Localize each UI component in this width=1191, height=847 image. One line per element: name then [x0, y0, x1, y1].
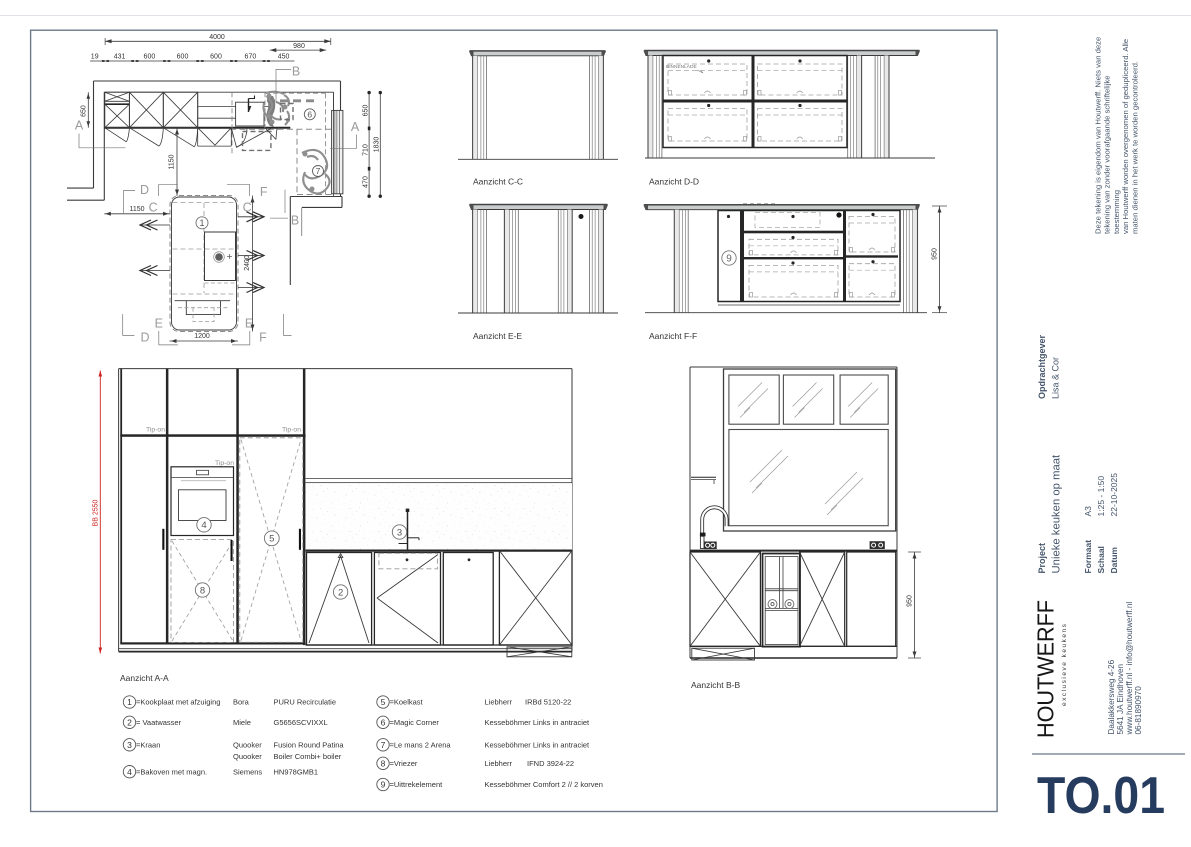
svg-text:2: 2 [338, 587, 343, 598]
svg-text:710: 710 [362, 144, 369, 156]
svg-text:7: 7 [316, 166, 321, 176]
svg-text:5: 5 [381, 697, 386, 707]
svg-text:=Bakoven met magn.: =Bakoven met magn. [136, 767, 207, 776]
svg-text:exclusieve keukens: exclusieve keukens [1061, 623, 1068, 706]
svg-text:650: 650 [81, 105, 88, 117]
svg-text:= Vaatwasser: = Vaatwasser [136, 718, 182, 727]
svg-text:A3: A3 [1083, 506, 1093, 517]
svg-text:C: C [149, 201, 158, 215]
svg-text:980: 980 [293, 43, 305, 50]
svg-text:Aanzicht D-D: Aanzicht D-D [649, 177, 699, 187]
svg-text:F: F [260, 185, 268, 199]
svg-text:Aanzicht B-B: Aanzicht B-B [691, 680, 740, 690]
svg-text:Aanzicht C-C: Aanzicht C-C [473, 177, 523, 187]
svg-text:1:25 - 1:50: 1:25 - 1:50 [1096, 476, 1106, 517]
svg-text:Quooker: Quooker [233, 741, 262, 750]
svg-text:Datum: Datum [1109, 547, 1119, 574]
svg-text:IFND 3924-22: IFND 3924-22 [527, 759, 574, 768]
svg-text:Tip-on: Tip-on [146, 427, 165, 434]
svg-text:1: 1 [199, 218, 204, 228]
svg-text:22-10-2025: 22-10-2025 [1109, 473, 1119, 517]
svg-text:1: 1 [127, 697, 132, 707]
svg-text:2: 2 [127, 717, 132, 727]
svg-text:431: 431 [114, 54, 126, 61]
svg-text:650: 650 [362, 105, 369, 117]
svg-text:6: 6 [307, 109, 312, 119]
svg-text:670: 670 [245, 54, 257, 61]
svg-text:Aanzicht A-A: Aanzicht A-A [120, 673, 169, 683]
svg-text:Quooker: Quooker [233, 752, 262, 761]
svg-text:Aanzicht F-F: Aanzicht F-F [649, 331, 697, 341]
svg-text:E: E [155, 317, 163, 331]
svg-text:3: 3 [127, 740, 132, 750]
svg-text:8: 8 [200, 585, 205, 596]
svg-text:1150: 1150 [169, 154, 176, 169]
svg-text:Tip-on: Tip-on [215, 460, 234, 467]
svg-text:PURU Recirculatie: PURU Recirculatie [274, 698, 337, 707]
svg-text:toestemming: toestemming [1112, 190, 1121, 234]
svg-text:Opdrachtgever: Opdrachtgever [1037, 334, 1047, 399]
svg-text:=Koelkast: =Koelkast [390, 698, 424, 707]
svg-text:450: 450 [278, 54, 290, 61]
svg-text:Liebherr: Liebherr [485, 759, 513, 768]
svg-text:Fusion Round Patina: Fusion Round Patina [274, 741, 345, 750]
svg-text:B: B [291, 214, 299, 228]
svg-text:600: 600 [210, 54, 222, 61]
svg-text:maten dienen in het werk te wo: maten dienen in het werk te worden gecon… [1130, 61, 1139, 234]
svg-text:=Kookplaat met afzuiging: =Kookplaat met afzuiging [136, 698, 220, 707]
svg-text:=Vriezer: =Vriezer [390, 759, 418, 768]
svg-text:06-81890970: 06-81890970 [1134, 686, 1143, 735]
svg-text:B: B [292, 65, 300, 79]
svg-text:4: 4 [127, 767, 132, 777]
svg-text:5: 5 [269, 534, 274, 545]
svg-text:9: 9 [381, 780, 386, 790]
svg-text:Deze tekening is eigendom van: Deze tekening is eigendom van Houtwerff.… [1094, 37, 1103, 234]
svg-text:950: 950 [907, 595, 914, 607]
svg-text:4: 4 [201, 520, 206, 531]
svg-text:D: D [140, 183, 149, 197]
svg-text:TO.01: TO.01 [1037, 767, 1165, 825]
svg-text:9: 9 [726, 254, 732, 265]
svg-text:=Le mans 2 Arena: =Le mans 2 Arena [390, 741, 452, 750]
svg-text:2400: 2400 [244, 255, 251, 271]
svg-text:HOUTWERFF: HOUTWERFF [1033, 600, 1059, 738]
svg-text:1150: 1150 [129, 206, 144, 213]
svg-text:Bora: Bora [233, 698, 250, 707]
svg-text:600: 600 [144, 54, 156, 61]
svg-text:Schaal: Schaal [1096, 546, 1106, 573]
svg-text:BB 2550: BB 2550 [93, 499, 100, 526]
svg-text:Project: Project [1037, 543, 1047, 574]
svg-text:Aanzicht E-E: Aanzicht E-E [473, 331, 522, 341]
svg-text:600: 600 [177, 54, 189, 61]
svg-text:5641 JA Eindhoven: 5641 JA Eindhoven [1116, 663, 1125, 734]
svg-text:HN978GMB1: HN978GMB1 [274, 767, 319, 776]
svg-text:F: F [259, 331, 267, 345]
svg-text:www.houtwerff.nl - info@houtwe: www.houtwerff.nl - info@houtwerff.nl [1125, 602, 1134, 736]
svg-text:BINNENLADE: BINNENLADE [666, 64, 697, 70]
svg-text:19: 19 [91, 54, 99, 61]
svg-text:Formaat: Formaat [1083, 540, 1093, 574]
svg-text:Kesseböhmer Links in antraciet: Kesseböhmer Links in antraciet [485, 718, 591, 727]
svg-text:A: A [351, 120, 360, 134]
svg-text:=Uittrekelement: =Uittrekelement [390, 780, 444, 789]
svg-text:8: 8 [381, 758, 386, 768]
svg-text:Tip-on: Tip-on [282, 427, 301, 434]
svg-text:Miele: Miele [233, 718, 251, 727]
svg-text:A: A [75, 119, 84, 133]
svg-text:=Kraan: =Kraan [136, 741, 160, 750]
svg-text:Siemens: Siemens [233, 767, 262, 776]
svg-text:=Magic Corner: =Magic Corner [390, 718, 440, 727]
svg-text:Unieke keuken op maat: Unieke keuken op maat [1051, 454, 1063, 574]
svg-text:Kesseböhmer Comfort 2 // 2 kor: Kesseböhmer Comfort 2 // 2 korven [485, 780, 603, 789]
svg-text:6: 6 [381, 717, 386, 727]
svg-text:7: 7 [381, 740, 386, 750]
svg-text:IRBd 5120-22: IRBd 5120-22 [525, 698, 571, 707]
svg-text:Daalakkersweg 4-26: Daalakkersweg 4-26 [1107, 659, 1116, 734]
svg-text:470: 470 [362, 176, 369, 188]
svg-text:Liebherr: Liebherr [485, 698, 513, 707]
svg-text:G5656SCVIXXL: G5656SCVIXXL [274, 718, 328, 727]
svg-text:1830: 1830 [373, 137, 380, 153]
svg-text:tekening van zonder voorafgaan: tekening van zonder voorafgaande schrift… [1103, 75, 1112, 234]
svg-text:950: 950 [932, 248, 939, 260]
svg-text:van Houtwerff worden overgenom: van Houtwerff worden overgenomen of gedu… [1121, 39, 1130, 234]
svg-text:1200: 1200 [194, 333, 210, 340]
svg-text:3: 3 [397, 527, 402, 538]
svg-text:Kesseböhmer Links in antraciet: Kesseböhmer Links in antraciet [485, 741, 591, 750]
svg-text:Lisa & Cor: Lisa & Cor [1051, 357, 1061, 399]
svg-text:D: D [140, 331, 149, 345]
svg-text:Boiler Combi+ boiler: Boiler Combi+ boiler [274, 752, 342, 761]
svg-text:4000: 4000 [209, 34, 225, 41]
